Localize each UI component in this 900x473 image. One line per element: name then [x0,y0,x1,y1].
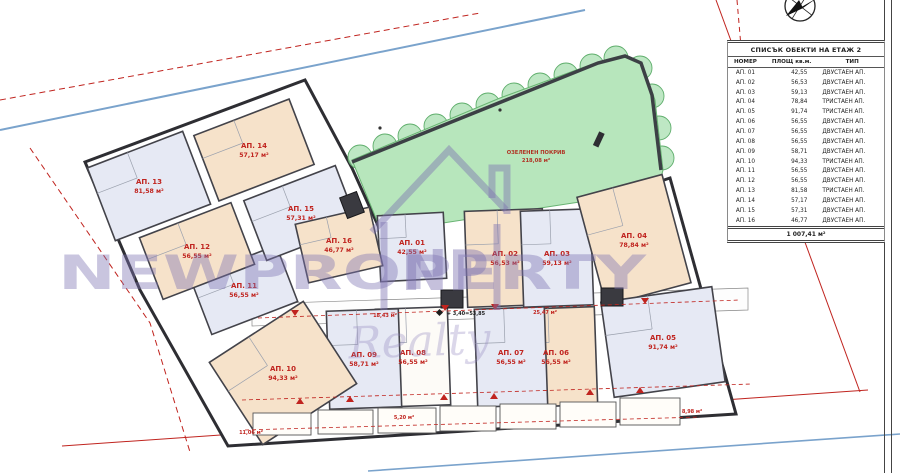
site-plan-sheet: ОЗЕЛЕНЕН ПОКРИВ 218,08 м² + 3,40=53,85 1… [0,0,900,473]
balcony [440,406,496,431]
table-row: АП. 0478,84ТРИСТАЕН АП. [728,98,884,108]
apartment-area-label: 94,33 м² [268,375,298,382]
roof-fixture [378,126,381,129]
apartment-area-label: 57,17 м² [239,152,269,159]
watermark-brand-text: NEWPROPERTY [58,246,647,301]
table-cell: ДВУСТАЕН АП. [820,206,884,216]
table-cell: ДВУСТАЕН АП. [820,216,884,226]
table-row: АП. 1156,55ДВУСТАЕН АП. [728,167,884,177]
balcony-area-label: 5,20 м² [394,415,414,421]
table-cell: ТРИСТАЕН АП. [820,107,884,117]
regulation-line-top [0,13,480,100]
table-cell: АП. 07 [728,127,763,137]
table-cell: ДВУСТАЕН АП. [820,176,884,186]
table-cell: ДВУСТАЕН АП. [820,68,884,78]
table-cell: ТРИСТАЕН АП. [820,186,884,196]
table-cell: 56,55 [763,117,820,127]
table-row: АП. 1094,33ТРИСТАЕН АП. [728,157,884,167]
table-cell: ДВУСТАЕН АП. [820,127,884,137]
table-cell: АП. 08 [728,137,763,147]
table-cell: 56,55 [763,167,820,177]
balcony [318,410,373,434]
roof-fixture [498,108,501,111]
table-cell: 56,53 [763,78,820,88]
green-roof-label: ОЗЕЛЕНЕН ПОКРИВ [507,150,566,156]
floor2-units-table: СПИСЪК ОБЕКТИ НА ЕТАЖ 2 НОМЕРПЛОЩ кв.м.Т… [727,40,885,243]
balcony-area-label: 25,47 м² [533,310,557,316]
table-cell: ТРИСТАЕН АП. [820,98,884,108]
apartment-area-label: 56,55 м² [541,359,571,366]
table-cell: ДВУСТАЕН АП. [820,117,884,127]
table-column-header: ПЛОЩ кв.м. [763,57,820,68]
table-row: АП. 1381,58ТРИСТАЕН АП. [728,186,884,196]
table-cell: 46,77 [763,216,820,226]
apartment-area-label: 91,74 м² [648,344,678,351]
green-roof-area-label: 218,08 м² [522,158,550,164]
apartment-id-label: АП. 05 [650,334,676,342]
table-cell: 57,31 [763,206,820,216]
table-row: АП. 0142,55ДВУСТАЕН АП. [728,68,884,78]
apartment-id-label: АП. 16 [326,237,352,245]
table-title: СПИСЪК ОБЕКТИ НА ЕТАЖ 2 [728,43,884,57]
table-cell: АП. 05 [728,107,763,117]
table-cell: АП. 01 [728,68,763,78]
table-cell: 81,58 [763,186,820,196]
apartment-id-label: АП. 04 [621,232,647,240]
watermark-script-text: Realty [347,314,493,370]
table-row: АП. 0856,55ДВУСТАЕН АП. [728,137,884,147]
apartment-id-label: АП. 06 [543,349,569,357]
table-cell: АП. 03 [728,88,763,98]
apartment-id-label: АП. 15 [288,205,314,213]
table-cell: ДВУСТАЕН АП. [820,147,884,157]
table-cell: ТРИСТАЕН АП. [820,157,884,167]
table-row: АП. 0656,55ДВУСТАЕН АП. [728,117,884,127]
street-line-bottom [368,434,900,471]
apartment-area-label: 57,31 м² [286,215,316,222]
table-row: АП. 0756,55ДВУСТАЕН АП. [728,127,884,137]
balcony-area-label: 11,06 м² [239,430,263,436]
table-cell: 58,71 [763,147,820,157]
apartment-id-label: АП. 07 [498,349,524,357]
table-column-header: ТИП [820,57,884,68]
table-cell: АП. 04 [728,98,763,108]
balcony [620,398,680,425]
balcony-area-label: 8,98 м² [682,409,702,415]
table-cell: АП. 06 [728,117,763,127]
table-cell: 56,55 [763,137,820,147]
table-cell: 56,55 [763,127,820,137]
apartment-id-label: АП. 13 [136,178,162,186]
table-row: АП. 1457,17ДВУСТАЕН АП. [728,196,884,206]
table-cell: АП. 13 [728,186,763,196]
table-cell: АП. 02 [728,78,763,88]
table-cell: 42,55 [763,68,820,78]
table-cell: 57,17 [763,196,820,206]
table-row: АП. 1557,31ДВУСТАЕН АП. [728,206,884,216]
table-row: АП. 0958,71ДВУСТАЕН АП. [728,147,884,157]
table-cell: АП. 09 [728,147,763,157]
table-cell: ДВУСТАЕН АП. [820,167,884,177]
sheet-frame [885,0,892,473]
table-cell: ДВУСТАЕН АП. [820,196,884,206]
table-header-row: НОМЕРПЛОЩ кв.м.ТИП [728,57,884,68]
table-cell: АП. 10 [728,157,763,167]
table-cell: ДВУСТАЕН АП. [820,88,884,98]
table-cell: ДВУСТАЕН АП. [820,78,884,88]
table-cell: 78,84 [763,98,820,108]
table-cell: АП. 14 [728,196,763,206]
north-arrow-icon [785,0,817,21]
balcony [500,404,556,429]
table-row: АП. 1256,55ДВУСТАЕН АП. [728,176,884,186]
units-table-grid: НОМЕРПЛОЩ кв.м.ТИП АП. 0142,55ДВУСТАЕН А… [728,57,884,226]
table-column-header: НОМЕР [728,57,763,68]
table-cell: АП. 15 [728,206,763,216]
apartment-area-label: 81,58 м² [134,188,164,195]
table-total: 1 007,41 м² [728,226,884,240]
table-row: АП. 0591,74ТРИСТАЕН АП. [728,107,884,117]
table-cell: 94,33 [763,157,820,167]
table-cell: 91,74 [763,107,820,117]
table-cell: 56,55 [763,176,820,186]
table-row: АП. 0359,13ДВУСТАЕН АП. [728,88,884,98]
table-row: АП. 0256,53ДВУСТАЕН АП. [728,78,884,88]
table-cell: АП. 11 [728,167,763,177]
apartment-area-label: 56,55 м² [496,359,526,366]
apartment-id-label: АП. 10 [270,365,296,373]
table-cell: ДВУСТАЕН АП. [820,137,884,147]
table-cell: АП. 12 [728,176,763,186]
table-cell: АП. 16 [728,216,763,226]
table-row: АП. 1646,77ДВУСТАЕН АП. [728,216,884,226]
apartment-id-label: АП. 14 [241,142,267,150]
balcony [560,402,616,427]
table-cell: 59,13 [763,88,820,98]
